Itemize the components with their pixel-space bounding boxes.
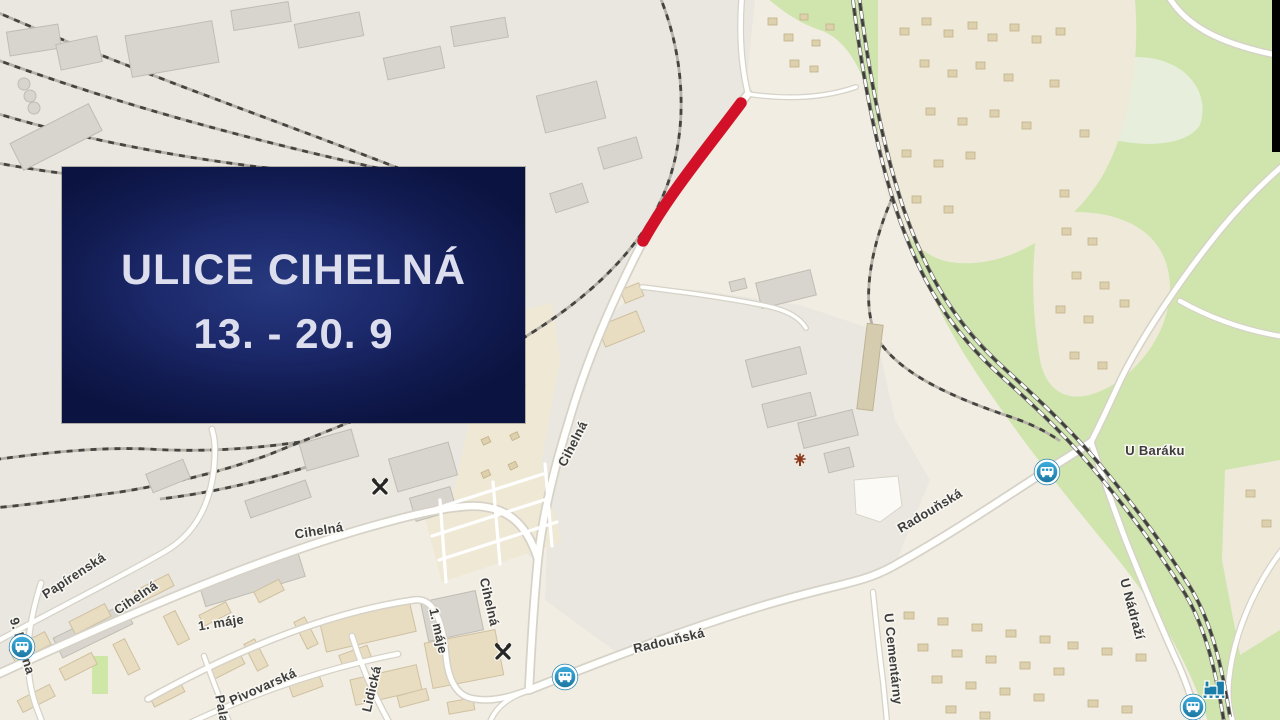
bus-stop-icon[interactable]	[552, 664, 578, 690]
map-viewport[interactable]: Papírenská Cihelná Cihelná Cihelná Cihel…	[0, 0, 1280, 720]
closure-banner-title: ULICE CIHELNÁ	[62, 249, 525, 292]
closure-banner: ULICE CIHELNÁ 13. - 20. 9	[62, 167, 525, 423]
street-label-u-baraku: U Baráku	[1125, 443, 1184, 458]
closure-banner-dates: 13. - 20. 9	[62, 313, 525, 355]
bus-stop-icon[interactable]	[1180, 694, 1206, 720]
bus-stop-icon[interactable]	[1034, 459, 1060, 485]
video-letterbox-strip	[1272, 0, 1280, 152]
bus-stop-icon[interactable]	[9, 634, 35, 660]
